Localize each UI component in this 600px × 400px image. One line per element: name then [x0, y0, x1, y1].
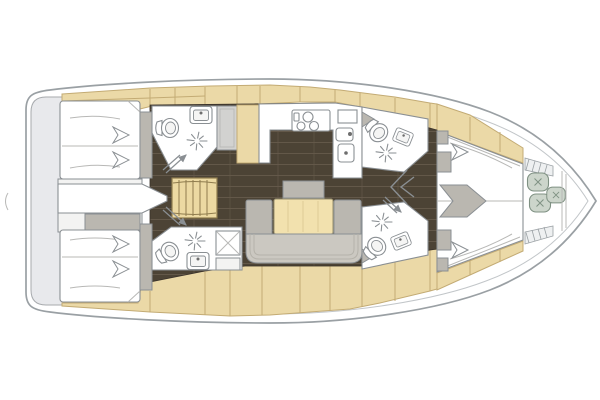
companionway-stairs [172, 178, 217, 218]
sink-icon [190, 107, 212, 124]
floorplan-canvas [0, 0, 600, 400]
aft-head-starboard [152, 227, 242, 270]
stove-icon [292, 110, 330, 131]
aft-cabin-starboard [60, 224, 152, 302]
settee-back-right [334, 200, 361, 235]
nightstand [140, 112, 152, 178]
aft-cabin-port [60, 101, 152, 179]
settee-back-left [246, 200, 272, 235]
shower-pan [216, 231, 240, 270]
fender-cushion-icon [528, 173, 549, 191]
galley-cabinet [237, 105, 259, 163]
aft-corridor [58, 184, 167, 213]
galley-box [338, 110, 357, 123]
stern-ladder-mark [6, 193, 9, 210]
nightstand [437, 230, 451, 250]
nightstand [437, 152, 451, 172]
sideboard [283, 181, 324, 198]
sink-icon [187, 253, 209, 270]
yacht-floorplan [0, 0, 600, 400]
bed-starboard-aft [60, 230, 140, 302]
nightstand [140, 224, 152, 290]
galley-sink-icon [336, 128, 354, 162]
corridor-locker [85, 214, 140, 230]
toilet-icon [156, 119, 179, 138]
